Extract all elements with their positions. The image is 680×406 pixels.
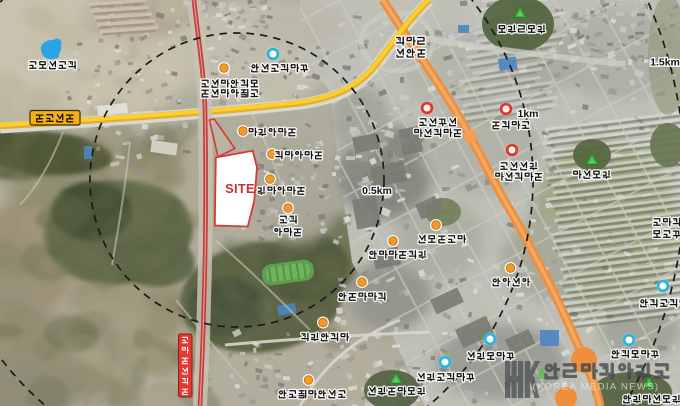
svg-text:1.5km: 1.5km: [650, 57, 680, 69]
svg-text:1km: 1km: [517, 108, 538, 120]
svg-text:0.5km: 0.5km: [362, 185, 392, 197]
svg-text:SITE: SITE: [225, 181, 255, 196]
svg-text:(KOREA MEDIA NEWS): (KOREA MEDIA NEWS): [533, 382, 660, 393]
